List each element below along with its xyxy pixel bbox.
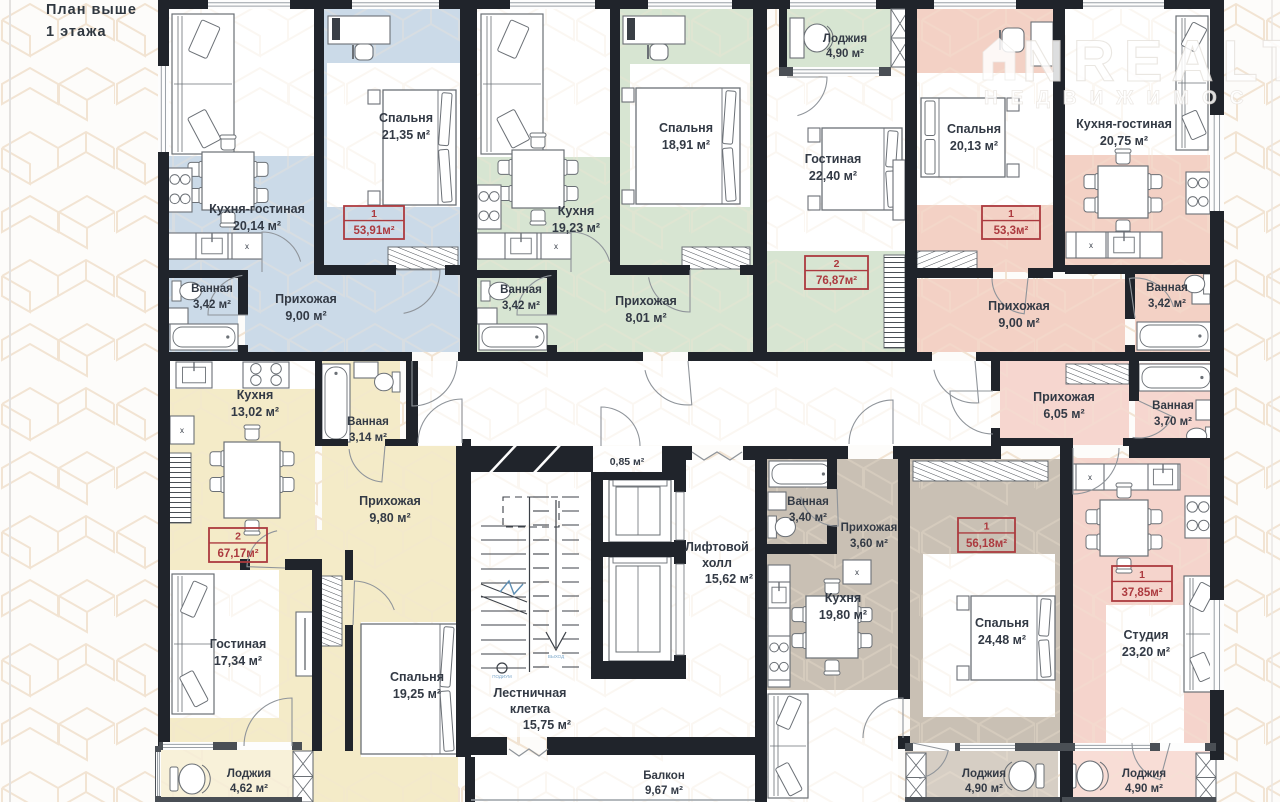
svg-text:Балкон: Балкон (643, 770, 685, 782)
svg-text:x: x (1089, 241, 1093, 250)
svg-text:x: x (245, 242, 249, 251)
svg-text:3,14 м²: 3,14 м² (349, 432, 387, 444)
svg-text:24,48 м²: 24,48 м² (978, 633, 1026, 647)
svg-text:Кухня: Кухня (825, 591, 862, 605)
svg-text:4,90 м²: 4,90 м² (1125, 783, 1163, 795)
svg-text:19,25 м²: 19,25 м² (393, 687, 441, 701)
svg-text:Ванная: Ванная (191, 283, 233, 295)
svg-text:3,70 м²: 3,70 м² (1154, 416, 1192, 428)
svg-text:Прихожая: Прихожая (841, 522, 898, 534)
svg-text:Спальня: Спальня (390, 670, 444, 684)
svg-text:Ванная: Ванная (787, 496, 829, 508)
svg-text:20,75 м²: 20,75 м² (1100, 134, 1148, 148)
svg-text:Спальня: Спальня (947, 122, 1001, 136)
svg-text:15,75 м²: 15,75 м² (523, 718, 571, 732)
svg-text:19,80 м²: 19,80 м² (819, 608, 867, 622)
svg-text:Гостиная: Гостиная (210, 637, 267, 651)
svg-text:3,42 м²: 3,42 м² (193, 299, 231, 311)
svg-text:x: x (855, 568, 859, 577)
svg-text:1: 1 (1139, 569, 1145, 581)
svg-text:4,62 м²: 4,62 м² (230, 783, 268, 795)
svg-text:3,60 м²: 3,60 м² (850, 538, 888, 550)
svg-text:18,91 м²: 18,91 м² (662, 138, 710, 152)
svg-text:Гостиная: Гостиная (805, 152, 862, 166)
svg-text:4,90 м²: 4,90 м² (826, 48, 864, 60)
svg-text:Лестничная: Лестничная (494, 686, 567, 700)
svg-text:Прихожая: Прихожая (1033, 390, 1095, 404)
svg-text:3,42 м²: 3,42 м² (502, 300, 540, 312)
svg-text:1: 1 (1008, 208, 1014, 220)
svg-text:План выше: План выше (46, 2, 137, 18)
svg-text:Прихожая: Прихожая (988, 299, 1050, 313)
svg-text:56,18м²: 56,18м² (966, 538, 1007, 550)
svg-text:ПОДИУМ: ПОДИУМ (492, 674, 512, 679)
svg-text:23,20 м²: 23,20 м² (1122, 645, 1170, 659)
svg-text:Лоджия: Лоджия (823, 33, 867, 45)
svg-text:22,40 м²: 22,40 м² (809, 169, 857, 183)
svg-text:Прихожая: Прихожая (359, 494, 421, 508)
svg-text:67,17м²: 67,17м² (217, 548, 258, 560)
svg-text:Прихожая: Прихожая (615, 294, 677, 308)
svg-text:17,34 м²: 17,34 м² (214, 654, 262, 668)
svg-text:Ванная: Ванная (500, 284, 542, 296)
svg-text:x: x (554, 242, 558, 251)
svg-text:53,91м²: 53,91м² (353, 225, 394, 237)
svg-text:Лоджия: Лоджия (227, 768, 271, 780)
svg-text:21,35 м²: 21,35 м² (382, 128, 430, 142)
svg-text:9,67 м²: 9,67 м² (645, 785, 683, 797)
svg-text:3,42 м²: 3,42 м² (1148, 298, 1186, 310)
svg-text:клетка: клетка (510, 702, 551, 716)
svg-text:9,00 м²: 9,00 м² (285, 309, 326, 323)
svg-text:0,85 м²: 0,85 м² (610, 456, 645, 468)
svg-text:Прихожая: Прихожая (275, 292, 337, 306)
svg-text:Спальня: Спальня (975, 616, 1029, 630)
svg-text:НЕДВИЖИМОС: НЕДВИЖИМОС (984, 88, 1256, 109)
svg-text:9,00 м²: 9,00 м² (998, 316, 1039, 330)
svg-text:Лифтовой: Лифтовой (685, 540, 749, 554)
svg-text:Кухня: Кухня (237, 388, 274, 402)
svg-text:Лоджия: Лоджия (962, 768, 1006, 780)
svg-text:19,23 м²: 19,23 м² (552, 221, 600, 235)
svg-text:Кухня-гостиная: Кухня-гостиная (209, 202, 305, 216)
svg-text:15,62 м²: 15,62 м² (705, 572, 753, 586)
svg-text:9,80 м²: 9,80 м² (369, 511, 410, 525)
svg-text:20,14 м²: 20,14 м² (233, 219, 281, 233)
svg-text:76,87м²: 76,87м² (816, 275, 857, 287)
svg-text:NREALT: NREALT (1022, 29, 1280, 94)
svg-text:x: x (1088, 473, 1092, 482)
svg-text:1: 1 (984, 521, 990, 533)
svg-text:Кухня-гостиная: Кухня-гостиная (1076, 117, 1172, 131)
svg-text:холл: холл (702, 556, 732, 570)
svg-text:Ванная: Ванная (1146, 282, 1188, 294)
svg-text:53,3м²: 53,3м² (994, 225, 1029, 237)
svg-text:Кухня: Кухня (558, 204, 595, 218)
svg-text:Лоджия: Лоджия (1122, 768, 1166, 780)
svg-text:37,85м²: 37,85м² (1121, 587, 1162, 599)
svg-text:8,01 м²: 8,01 м² (625, 311, 666, 325)
svg-text:1 этажа: 1 этажа (46, 24, 107, 40)
svg-text:1: 1 (371, 208, 377, 220)
svg-text:13,02 м²: 13,02 м² (231, 405, 279, 419)
svg-text:3,40 м²: 3,40 м² (789, 512, 827, 524)
svg-text:20,13 м²: 20,13 м² (950, 139, 998, 153)
svg-text:4,90 м²: 4,90 м² (965, 783, 1003, 795)
svg-text:6,05 м²: 6,05 м² (1043, 407, 1084, 421)
svg-text:Ванная: Ванная (347, 416, 389, 428)
svg-text:2: 2 (834, 258, 840, 270)
svg-text:ВЫХОД: ВЫХОД (548, 654, 564, 659)
svg-text:Спальня: Спальня (379, 111, 433, 125)
svg-text:x: x (180, 426, 184, 435)
svg-text:Ванная: Ванная (1152, 400, 1194, 412)
svg-text:Студия: Студия (1123, 628, 1168, 642)
svg-text:2: 2 (235, 531, 241, 543)
svg-text:Спальня: Спальня (659, 121, 713, 135)
